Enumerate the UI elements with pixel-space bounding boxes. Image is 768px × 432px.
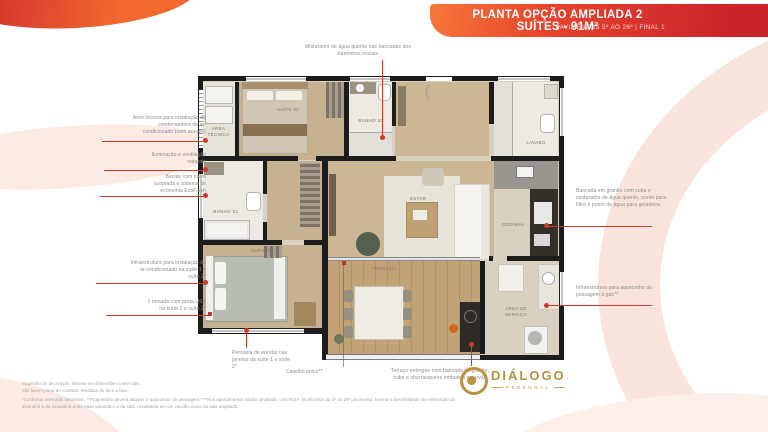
dining-chair (403, 326, 412, 338)
dialogo-logo: DIÁLOGO PERSONAL (460, 366, 580, 398)
footnote-line: *Conforme memorial descritivo. **Proprie… (22, 397, 482, 404)
page-subtitle: PAVIMENTOS 5º AO 26º | FINAL 1 (450, 24, 665, 31)
wall-segment (392, 82, 396, 126)
sliding-glass-door (328, 257, 480, 261)
leader-line (100, 196, 206, 197)
tv-console (329, 174, 336, 236)
leader-line (104, 170, 206, 171)
wall-segment (489, 82, 494, 124)
laundry-sink (542, 272, 555, 285)
washer-drum (528, 331, 542, 345)
note-bancada: Bancada em granito com cuba e misturador… (576, 188, 668, 209)
note-caixilho: Caixilho único** (286, 369, 346, 376)
tagline-dash (554, 387, 565, 388)
footnote-line: não fazem parte do contrato. Medidas de … (22, 388, 482, 395)
condenser-unit (205, 86, 233, 104)
annotation-marker (342, 261, 346, 265)
annotation-dot (380, 135, 385, 140)
kitchen-sink (516, 166, 534, 178)
note-aquecedor: Infraestrutura para aquecedor de passage… (576, 285, 672, 299)
wardrobe-corridor (300, 163, 320, 227)
wall-segment (491, 156, 564, 161)
wall-segment (263, 222, 267, 240)
sink-lavabo (544, 84, 558, 99)
wall-segment (489, 256, 493, 261)
note-infra-ar: Infraestrutura para instalação de ar-con… (128, 260, 206, 281)
dining-chair (344, 290, 353, 302)
wall-segment (507, 256, 564, 261)
floor-plan: ÁREA TÉCNICA SUÍTE 02 BANHO S2 LAVABO ES… (198, 76, 564, 360)
dining-chair (344, 308, 353, 320)
note-tomada-usb: 1 tomada com porta USB na suíte 1 e suít… (142, 299, 206, 313)
window-banho-s2 (350, 77, 390, 81)
annotation-dot (203, 280, 208, 285)
tagline-dash (492, 387, 503, 388)
dining-chair (344, 326, 353, 338)
room-label-estar: ESTAR (398, 196, 438, 202)
marketing-floorplan-page: PLANTA OPÇÃO AMPLIADA 2 SUÍTES - 91M² PA… (0, 0, 768, 432)
toilet-lavabo (540, 114, 555, 133)
tagline-text: PERSONAL (506, 385, 551, 390)
wall-segment (304, 240, 322, 245)
dining-table (354, 286, 404, 340)
room-label-banho-s2: BANHO S2 (350, 118, 392, 124)
window-top-right (498, 77, 550, 81)
leader-line (102, 141, 206, 142)
bed-suite1-pillow (215, 262, 226, 284)
dialogo-d-icon (460, 367, 488, 395)
wall-segment (198, 156, 298, 161)
shower-banho-s2 (350, 132, 392, 157)
room-label-area-servico: ÁREA DE SERVIÇO (494, 306, 538, 317)
note-persiana: Persiana de enrolar nas janelas da suíte… (232, 350, 292, 371)
logo-name: DIÁLOGO (491, 368, 566, 383)
bed-suite1-blanket (274, 257, 285, 319)
wall-segment (316, 156, 349, 161)
shower-lavabo (494, 82, 513, 156)
wall-segment (263, 161, 267, 194)
leader-line (548, 305, 652, 306)
dining-chair (403, 308, 412, 320)
annotation-dot (203, 167, 208, 172)
laundry-counter (538, 264, 560, 310)
bed-suite2-pillow (247, 91, 273, 100)
stove (534, 202, 552, 224)
footnote: Sugestão de decoração. Móveis em dimensõ… (22, 381, 482, 411)
wall-segment (235, 82, 239, 156)
armchair-estar (422, 168, 444, 186)
sofa (454, 184, 490, 260)
annotation-dot (244, 328, 249, 333)
coffee-table (406, 202, 438, 238)
leader-line (548, 226, 652, 227)
window-suite2 (246, 77, 306, 81)
note-bacias: Bacias com caixa acoplada e sistema de e… (146, 174, 206, 195)
wall-segment (480, 355, 564, 360)
leader-line (382, 60, 383, 136)
window-lavabo (560, 88, 564, 136)
annotation-dot (544, 223, 549, 228)
room-label-cozinha: COZINHA (496, 222, 530, 228)
entry-door-arc (426, 81, 448, 103)
toilet-banho-s2 (378, 84, 391, 101)
bed-suite1-pillow (215, 288, 226, 310)
basin-banho-s2 (356, 84, 364, 92)
bed-suite1-headboard (206, 256, 213, 320)
window-suite1 (212, 329, 304, 333)
bed-suite2-pillow (276, 91, 302, 100)
bed-suite2-headboard (242, 82, 308, 89)
top-left-red-swoosh (0, 0, 202, 34)
dining-chair (403, 290, 412, 302)
wall-segment (198, 240, 282, 245)
annotation-dot (203, 138, 208, 143)
room-label-banho-s1: BANHO S1 (208, 209, 244, 215)
annotation-dot (469, 342, 474, 347)
lounge-chair-round (356, 232, 380, 256)
terrace-glass-rail (326, 354, 480, 360)
wall-segment (480, 261, 485, 354)
room-label-suite2: SUÍTE 02 (268, 107, 308, 113)
leader-line (471, 346, 472, 366)
kitchen-sink-2 (534, 234, 550, 246)
note-area-tecnica: Área técnica para instalação de condensa… (128, 115, 206, 136)
footnote-line: alvenaria e da esquadria entre essa vara… (22, 404, 482, 411)
leader-line (343, 265, 344, 367)
window-servico (560, 272, 564, 306)
wall-segment (349, 156, 396, 161)
footnote-line: Sugestão de decoração. Móveis em dimensõ… (22, 381, 482, 388)
coffee-table-tray (413, 210, 427, 220)
leader-line (246, 332, 247, 348)
leader-line (106, 315, 212, 316)
side-table-orange (449, 324, 458, 333)
grill-ring (464, 310, 477, 323)
leader-line (96, 283, 206, 284)
room-label-suite1: SUÍTE 01 (242, 248, 282, 254)
dresser-suite1 (294, 302, 316, 326)
logo-tagline: PERSONAL (492, 385, 565, 390)
tall-cabinet (498, 264, 524, 292)
bed-suite2-throw (243, 124, 307, 136)
room-label-area-tecnica: ÁREA TÉCNICA (202, 126, 235, 137)
annotation-dot (203, 193, 208, 198)
room-label-terraco: TERRAÇO (364, 266, 404, 272)
note-misturador: Misturador de água quente nas bancadas d… (298, 44, 418, 58)
toilet-banho-s1 (246, 192, 261, 211)
condenser-unit (205, 106, 233, 124)
bathtub (204, 220, 250, 240)
annotation-marker (208, 312, 212, 316)
wardrobe-suite2 (326, 82, 346, 118)
note-iluminacao: Iluminação e ventilação naturais (150, 152, 206, 166)
right-pale-swoosh (598, 8, 768, 432)
wall-segment (344, 82, 349, 156)
annotation-dot (544, 303, 549, 308)
sideboard-hall (398, 86, 406, 126)
room-label-lavabo: LAVABO (514, 140, 558, 146)
